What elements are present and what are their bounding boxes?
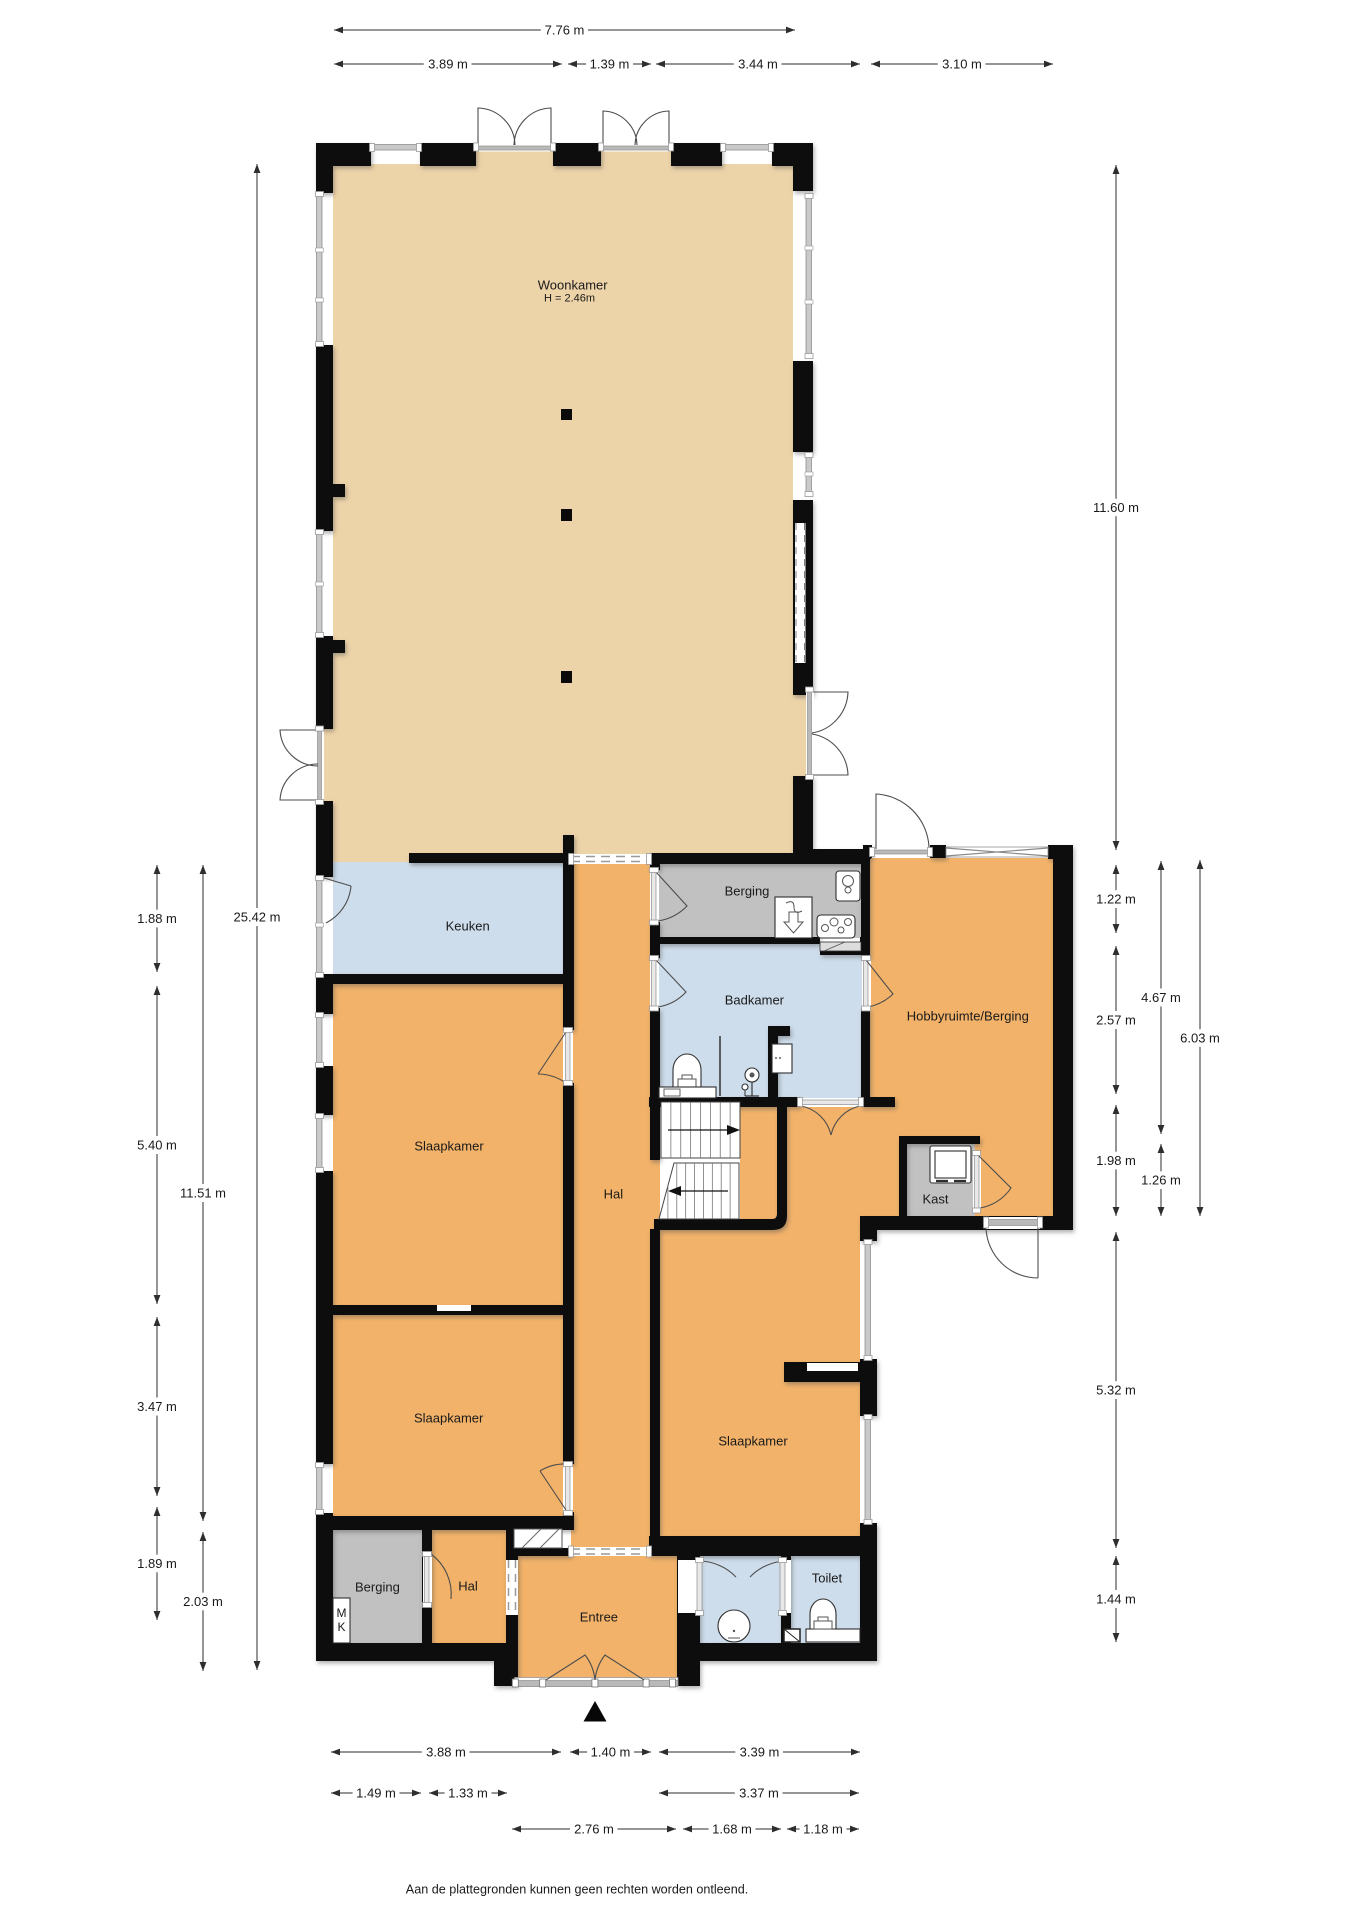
svg-text:Slaapkamer: Slaapkamer [718, 1434, 788, 1449]
svg-text:Slaapkamer: Slaapkamer [414, 1139, 484, 1154]
svg-text:Hal: Hal [604, 1187, 624, 1202]
svg-text:Keuken: Keuken [446, 919, 490, 934]
svg-text:5.32 m: 5.32 m [1096, 1383, 1136, 1398]
svg-text:1.44 m: 1.44 m [1096, 1592, 1136, 1607]
svg-text:1.26 m: 1.26 m [1141, 1173, 1181, 1188]
svg-text:K: K [337, 1620, 345, 1634]
svg-text:Badkamer: Badkamer [725, 993, 785, 1008]
svg-text:3.10 m: 3.10 m [942, 57, 982, 72]
svg-text:3.44 m: 3.44 m [738, 57, 778, 72]
svg-text:1.88 m: 1.88 m [137, 911, 177, 926]
svg-text:1.22 m: 1.22 m [1096, 892, 1136, 907]
svg-text:H = 2.46m: H = 2.46m [544, 293, 595, 305]
svg-text:3.88 m: 3.88 m [426, 1745, 466, 1760]
svg-text:2.03 m: 2.03 m [183, 1594, 223, 1609]
svg-text:Toilet: Toilet [812, 1571, 843, 1586]
svg-text:Aan de plattegronden kunnen ge: Aan de plattegronden kunnen geen rechten… [406, 1883, 748, 1897]
svg-text:3.47 m: 3.47 m [137, 1399, 177, 1414]
svg-text:11.51 m: 11.51 m [180, 1186, 226, 1201]
svg-text:1.89 m: 1.89 m [137, 1556, 177, 1571]
svg-text:3.89 m: 3.89 m [428, 57, 468, 72]
svg-text:25.42 m: 25.42 m [234, 910, 281, 925]
svg-text:Berging: Berging [355, 1580, 400, 1595]
svg-text:1.68 m: 1.68 m [712, 1822, 752, 1837]
svg-text:Hal: Hal [458, 1579, 478, 1594]
svg-text:6.03 m: 6.03 m [1180, 1031, 1220, 1046]
svg-text:1.40 m: 1.40 m [591, 1745, 631, 1760]
svg-text:Kast: Kast [922, 1192, 948, 1207]
svg-text:M: M [337, 1606, 347, 1620]
svg-text:11.60 m: 11.60 m [1093, 500, 1139, 515]
svg-text:1.18 m: 1.18 m [803, 1822, 843, 1837]
svg-text:5.40 m: 5.40 m [137, 1138, 177, 1153]
svg-text:2.76 m: 2.76 m [574, 1822, 614, 1837]
svg-text:1.33 m: 1.33 m [448, 1786, 488, 1801]
svg-text:Berging: Berging [725, 884, 770, 899]
svg-text:Hobbyruimte/Berging: Hobbyruimte/Berging [907, 1009, 1029, 1024]
svg-text:1.39 m: 1.39 m [590, 57, 630, 72]
svg-text:Entree: Entree [580, 1610, 618, 1625]
svg-text:3.37 m: 3.37 m [739, 1786, 779, 1801]
svg-text:Slaapkamer: Slaapkamer [414, 1411, 484, 1426]
svg-text:2.57 m: 2.57 m [1096, 1013, 1136, 1028]
svg-text:Woonkamer: Woonkamer [538, 278, 609, 293]
svg-text:3.39 m: 3.39 m [740, 1745, 780, 1760]
svg-text:1.98 m: 1.98 m [1096, 1153, 1136, 1168]
svg-text:1.49 m: 1.49 m [356, 1786, 396, 1801]
svg-text:4.67 m: 4.67 m [1141, 990, 1181, 1005]
svg-text:7.76 m: 7.76 m [545, 23, 585, 38]
